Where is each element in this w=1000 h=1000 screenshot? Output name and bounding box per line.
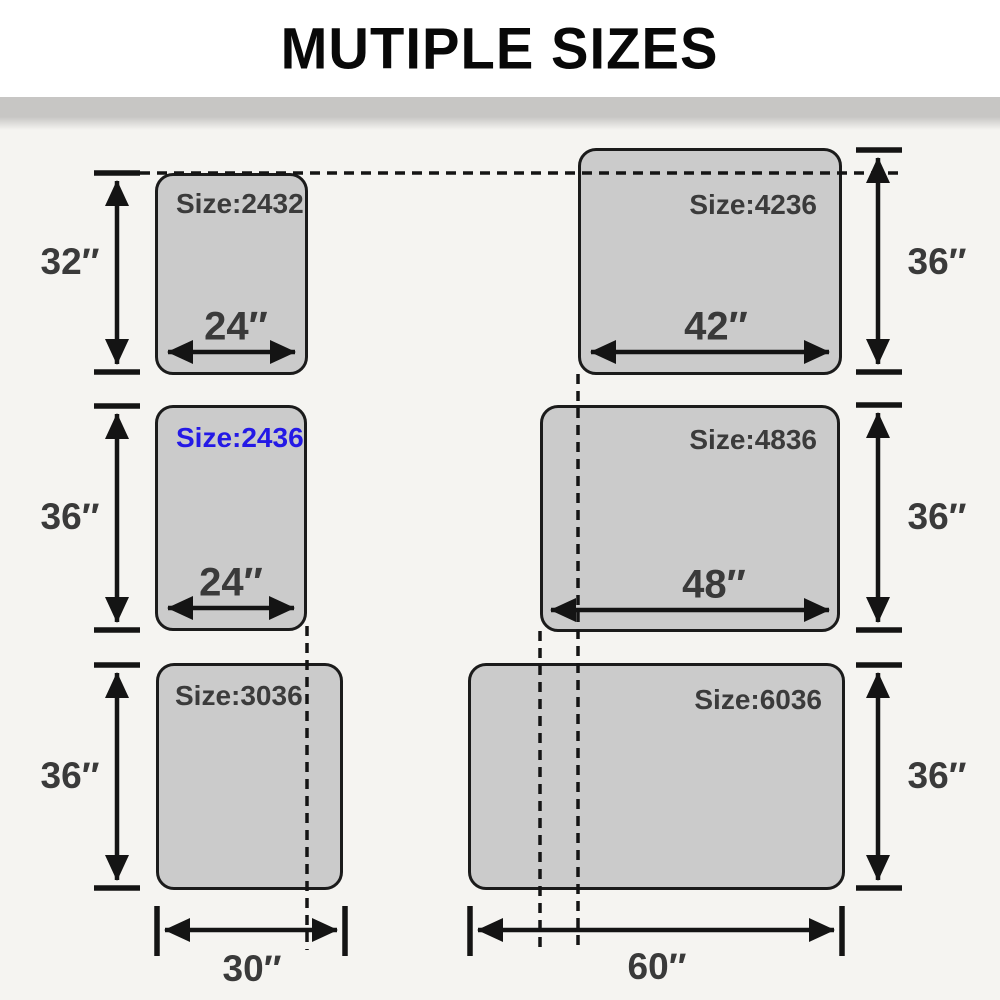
height-label-3036: 36″: [41, 755, 100, 797]
size-panel-6036: Size:6036: [468, 663, 845, 890]
height-label-4836: 36″: [908, 496, 967, 538]
page-title: MUTIPLE SIZES: [281, 15, 719, 82]
height-label-6036: 36″: [908, 755, 967, 797]
header-band: MUTIPLE SIZES: [0, 0, 1000, 97]
size-panel-4236-label: Size:4236: [689, 189, 817, 221]
width-label-4236: 42″: [684, 305, 748, 350]
width-label-2432: 24″: [204, 305, 268, 350]
size-panel-6036-label: Size:6036: [694, 684, 822, 716]
width-label-6036: 60″: [628, 946, 687, 988]
size-panel-4836-label: Size:4836: [689, 424, 817, 456]
width-label-3036: 30″: [223, 948, 282, 990]
height-label-4236: 36″: [908, 241, 967, 283]
height-label-2432: 32″: [41, 241, 100, 283]
size-panel-3036-label: Size:3036: [175, 680, 303, 712]
height-label-2436: 36″: [41, 496, 100, 538]
divider-bar: [0, 97, 1000, 130]
size-panel-2432-label: Size:2432: [176, 188, 304, 220]
size-panel-2436-label: Size:2436: [176, 422, 304, 454]
size-panel-3036: Size:3036: [156, 663, 343, 890]
width-label-4836: 48″: [682, 563, 746, 608]
width-label-2436: 24″: [199, 561, 263, 606]
size-chart: MUTIPLE SIZES Size:2432 Size:4236 Size:2…: [0, 0, 1000, 1000]
